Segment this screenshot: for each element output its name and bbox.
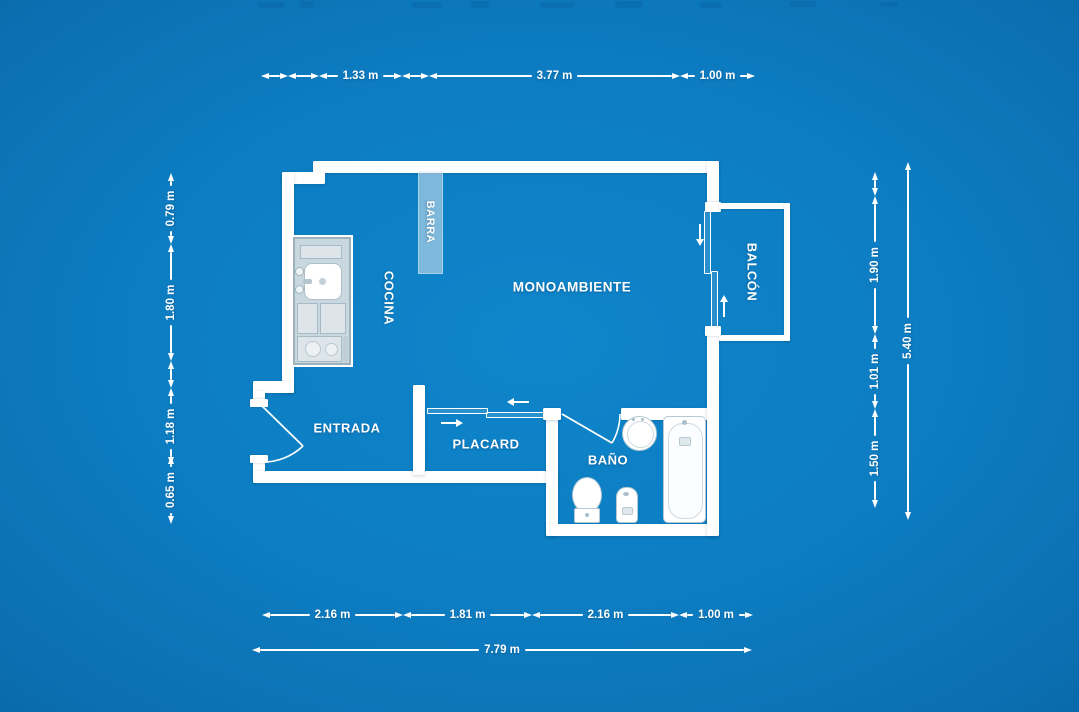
bathroom-door-leaf <box>562 414 612 443</box>
dimension-segment: 1.33 m <box>319 70 402 82</box>
kitchen-cabinet <box>297 303 318 334</box>
placard-sliding-door-panel <box>427 408 488 414</box>
washbasin-bowl <box>627 421 654 448</box>
wall-bathroom-bottom <box>546 524 718 536</box>
kitchen-faucet-knob <box>295 267 304 276</box>
dimension-segment: 1.00 m <box>680 70 755 82</box>
wall-placard-divider <box>413 385 425 475</box>
dimension-segment-total: 7.79 m <box>252 644 752 656</box>
wall-right-lower <box>707 335 719 536</box>
bathtub-faucet <box>682 420 687 425</box>
bathtub-drain <box>679 437 691 446</box>
dimension-segment <box>261 70 288 82</box>
counter-edge-strip <box>343 336 348 362</box>
bidet-tap <box>623 492 629 496</box>
balcony-sliding-door-panel <box>704 211 711 274</box>
dimension-segment-total: 5.40 m <box>902 162 914 520</box>
top-edge-artifact <box>300 1 314 8</box>
kitchen-cabinet <box>320 303 346 334</box>
dimension-segment: 1.00 m <box>679 609 753 621</box>
kitchen-counter <box>293 237 351 365</box>
wall-bottom-west <box>253 471 558 483</box>
top-edge-artifact <box>540 2 574 8</box>
top-edge-artifact <box>790 1 816 7</box>
entry-door-frame-top <box>250 399 268 407</box>
balcony-sliding-door-panel <box>711 271 718 334</box>
kitchen-drainer <box>300 245 342 259</box>
bathroom-door-arc <box>612 414 620 443</box>
wall-bathroom-door-jamb-left <box>543 408 561 420</box>
dimension-segment <box>165 361 177 388</box>
room-label-balcon: BALCÓN <box>745 243 760 302</box>
dimension-segment <box>288 70 319 82</box>
dimension-segment: 1.01 m <box>869 334 881 409</box>
kitchen-sink-drain <box>319 278 326 285</box>
entry-door-frame-bottom <box>250 455 268 463</box>
dimension-segment: 3.77 m <box>429 70 680 82</box>
top-edge-artifact <box>258 2 284 8</box>
dimension-segment: 1.90 m <box>869 196 881 334</box>
bidet-drain <box>622 507 633 515</box>
kitchen-faucet-knob <box>295 285 304 294</box>
placard-sliding-door-panel <box>486 412 545 418</box>
stove-burner <box>305 341 321 357</box>
top-edge-artifact <box>700 2 722 8</box>
room-label-barra: BARRA <box>424 201 436 244</box>
floor-plan: MONOAMBIENTE COCINA BARRA ENTRADA PLACAR… <box>0 0 1079 712</box>
door-swing-arcs <box>0 0 1079 712</box>
dimension-segment: 1.80 m <box>165 244 177 361</box>
washbasin-tap <box>632 418 635 421</box>
entry-door-leaf <box>260 404 303 446</box>
dimension-segment: 2.16 m <box>262 609 403 621</box>
room-label-bano: BAÑO <box>588 453 628 468</box>
balcony-wall-top <box>719 203 790 209</box>
wall-top <box>313 161 719 173</box>
toilet-flush-button <box>585 513 589 517</box>
room-label-monoambiente: MONOAMBIENTE <box>513 280 632 295</box>
dimension-segment: 1.18 m <box>165 388 177 465</box>
washbasin-tap <box>641 418 644 421</box>
dimension-segment <box>869 172 881 196</box>
dimension-segment: 1.81 m <box>403 609 532 621</box>
top-edge-artifact <box>615 1 643 8</box>
top-edge-artifact <box>880 2 898 7</box>
stove-burner <box>325 343 338 356</box>
dimension-segment: 2.16 m <box>532 609 679 621</box>
balcony-wall-bottom <box>719 335 790 341</box>
dimension-segment: 0.79 m <box>165 173 177 244</box>
wall-right-upper <box>707 161 719 208</box>
dimension-segment: 1.50 m <box>869 409 881 508</box>
kitchen-faucet-spout <box>303 279 312 284</box>
room-label-placard: PLACARD <box>452 437 519 452</box>
room-label-entrada: ENTRADA <box>313 421 380 436</box>
wall-bathroom-left <box>546 408 558 536</box>
top-edge-artifact <box>412 2 442 8</box>
balcony-wall-right <box>784 203 790 341</box>
top-edge-artifact <box>470 1 490 8</box>
room-label-cocina: COCINA <box>382 271 397 325</box>
dimension-segment <box>402 70 429 82</box>
dimension-segment: 0.65 m <box>165 465 177 524</box>
